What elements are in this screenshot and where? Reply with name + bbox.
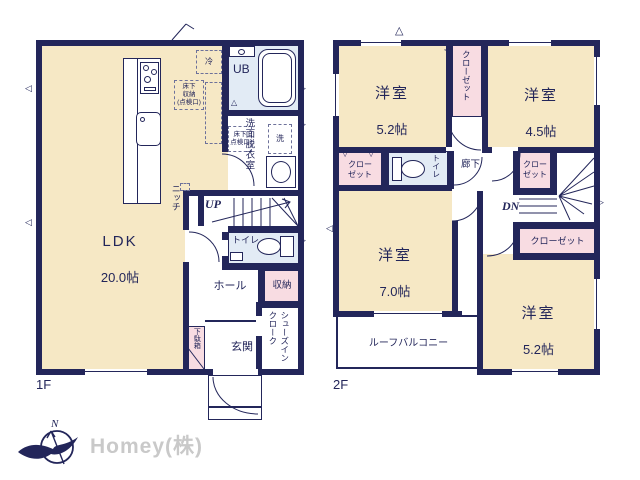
niche-box bbox=[180, 183, 190, 191]
wall bbox=[222, 256, 228, 264]
porch bbox=[208, 375, 262, 420]
vent-icon bbox=[25, 218, 32, 227]
wall bbox=[183, 196, 189, 230]
wall bbox=[228, 110, 300, 116]
closet-wide-label: クローゼット bbox=[519, 236, 596, 247]
burner-icon bbox=[143, 65, 149, 71]
room-sw-size: 7.0帖 bbox=[338, 284, 452, 300]
grill-icon bbox=[144, 87, 156, 91]
floor1-label: 1F bbox=[36, 377, 51, 393]
wall bbox=[198, 196, 204, 226]
stairs-up-label: UP bbox=[205, 197, 221, 211]
toilet-tank bbox=[280, 236, 294, 257]
floorplan-canvas: 冷 床下 収納 (点検口) 床下 点検口 洗 bbox=[0, 0, 640, 480]
faucet-icon bbox=[140, 117, 145, 122]
room-ne-size: 4.5帖 bbox=[488, 124, 594, 140]
vent-icon bbox=[326, 224, 333, 233]
toilet1f-label: トイレ bbox=[232, 235, 259, 246]
washroom-label: 洗面脱衣室 bbox=[243, 118, 254, 171]
shoe-cabinet-label: 下駄箱 bbox=[192, 328, 200, 349]
fold-door-marker-icon bbox=[444, 46, 450, 54]
room-nw-name: 洋室 bbox=[338, 85, 446, 103]
underfloor-storage-box: 床下 収納 (点検口) bbox=[174, 80, 204, 110]
toilet-basin bbox=[230, 252, 243, 261]
roof-balcony-label: ルーフバルコニー bbox=[336, 338, 481, 350]
wall bbox=[448, 151, 454, 189]
stairs-down-label: DN bbox=[502, 199, 519, 213]
cupboard-space bbox=[205, 82, 222, 144]
compass-north-label: N bbox=[51, 418, 58, 431]
hall-label: ホール bbox=[202, 280, 258, 293]
wall bbox=[222, 232, 228, 240]
fold-door-marker-icon bbox=[576, 253, 582, 261]
underfloor-storage-label: 床下 収納 (点検口) bbox=[177, 83, 201, 107]
room-nw-size: 5.2帖 bbox=[338, 122, 446, 138]
wall bbox=[446, 44, 452, 147]
roof-vent-icon bbox=[395, 26, 403, 37]
room-se-name: 洋室 bbox=[483, 305, 594, 323]
closet-e-label: クロー ゼット bbox=[519, 160, 551, 179]
brand-text: Homey(株) bbox=[90, 430, 203, 460]
fold-door-marker-icon bbox=[522, 253, 528, 261]
window bbox=[594, 278, 600, 330]
room-label-sw: 洋室 7.0帖 bbox=[338, 228, 452, 319]
room-label-ne: 洋室 4.5帖 bbox=[488, 68, 594, 159]
floor2-label: 2F bbox=[333, 377, 348, 393]
fridge-space: 冷 bbox=[196, 50, 222, 74]
room-label-se: 洋室 5.2帖 bbox=[483, 286, 594, 377]
vent-icon bbox=[299, 84, 306, 93]
room-ne-name: 洋室 bbox=[488, 87, 594, 105]
window bbox=[508, 40, 552, 46]
entry-step-line bbox=[205, 320, 256, 322]
wall bbox=[228, 226, 304, 232]
window bbox=[594, 56, 600, 106]
wall bbox=[256, 302, 304, 308]
washbasin bbox=[266, 156, 296, 188]
fridge-label: 冷 bbox=[205, 57, 213, 67]
basin-icon bbox=[238, 49, 245, 55]
vent-icon bbox=[597, 198, 604, 207]
window bbox=[84, 369, 148, 375]
niche-label: ニッチ bbox=[170, 184, 181, 211]
vent-icon bbox=[25, 84, 32, 93]
washer-label: 洗 bbox=[276, 134, 284, 144]
bathtub-inner bbox=[262, 53, 292, 103]
washer-space: 洗 bbox=[268, 124, 292, 154]
room-label-ldk: LDK 20.0帖 bbox=[70, 214, 170, 305]
burner-icon bbox=[151, 69, 157, 75]
storage-label: 収納 bbox=[264, 280, 300, 291]
window bbox=[360, 40, 402, 46]
burner-icon bbox=[144, 76, 151, 83]
closet-w-label: クロー ゼット bbox=[338, 160, 382, 179]
entrance-door-opening bbox=[213, 369, 258, 375]
toilet-bowl bbox=[257, 238, 281, 255]
stove bbox=[140, 62, 159, 94]
room-label-nw: 洋室 5.2帖 bbox=[338, 66, 446, 157]
hood-vent-icon bbox=[172, 24, 194, 40]
bath-door-marker-icon bbox=[231, 99, 237, 107]
ldk-size: 20.0帖 bbox=[70, 270, 170, 286]
toilet-bowl bbox=[401, 160, 425, 178]
wall bbox=[338, 185, 452, 191]
wall bbox=[513, 222, 596, 228]
ldk-name: LDK bbox=[70, 233, 170, 251]
compass-icon bbox=[18, 431, 78, 464]
room-sw-name: 洋室 bbox=[338, 247, 452, 265]
vent-icon bbox=[299, 236, 306, 245]
wall bbox=[513, 189, 557, 195]
door-arc bbox=[448, 117, 481, 150]
shoes-in-closet-label: シューズイン クローク bbox=[266, 311, 290, 367]
porch-step-line bbox=[209, 406, 261, 408]
bath-vanity bbox=[229, 46, 255, 57]
corridor-label: 廊下 bbox=[461, 159, 480, 170]
room-se-size: 5.2帖 bbox=[483, 342, 594, 358]
closet-tall-label: クローゼット bbox=[461, 50, 471, 101]
entrance-label: 玄関 bbox=[220, 341, 264, 354]
bathtub bbox=[258, 49, 296, 107]
basin-icon bbox=[271, 161, 291, 183]
wall bbox=[256, 308, 262, 316]
toilet2f-label: トイレ bbox=[431, 154, 441, 178]
unit-bath-label: UB bbox=[233, 62, 250, 76]
wall bbox=[183, 262, 189, 371]
vent-icon bbox=[299, 120, 306, 129]
wall bbox=[452, 221, 458, 313]
kitchen-sink bbox=[136, 112, 161, 146]
